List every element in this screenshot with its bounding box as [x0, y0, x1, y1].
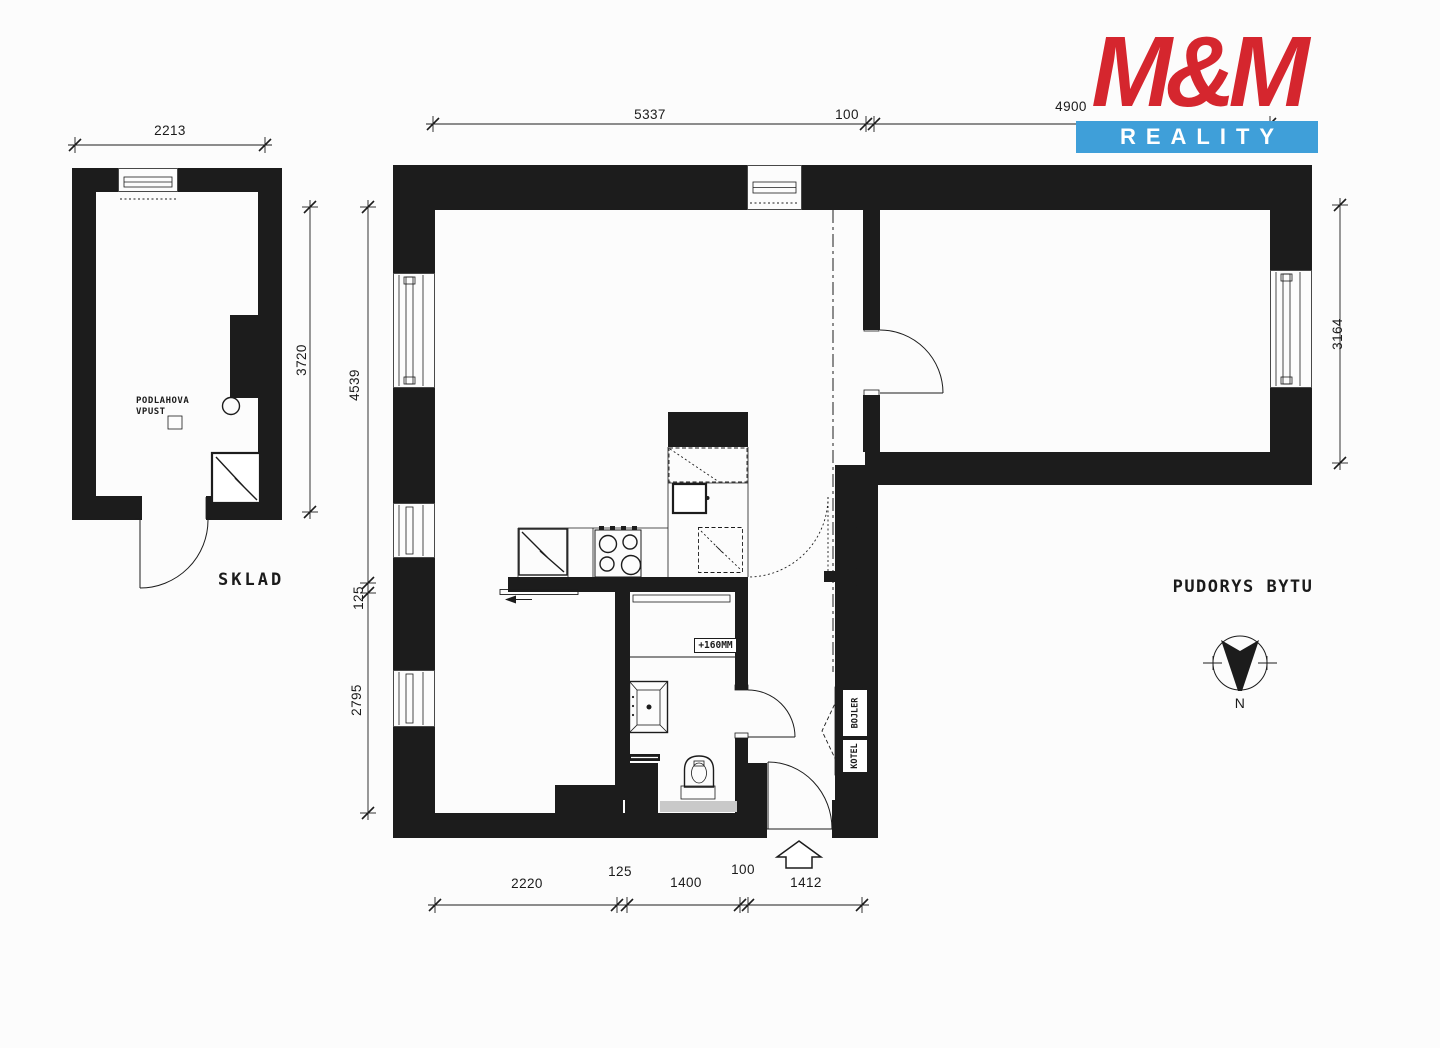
window-left-3 — [394, 671, 435, 727]
dim-sklad-right: 3720 — [294, 320, 310, 400]
door-entrance — [768, 762, 832, 829]
door-kitchen-dashed — [748, 497, 828, 577]
appliance-dashed-icon — [699, 528, 743, 573]
flue-circle — [223, 398, 240, 415]
floorplan-page: 2213 3720 5337 100 4900 4539 125 2795 31… — [0, 0, 1440, 1048]
window-right — [1271, 271, 1312, 388]
apartment-plan-label: PUDORYS BYTU — [1143, 577, 1343, 597]
floor-drain-label-line1: PODLAHOVA — [136, 396, 189, 407]
kitchen-chimney — [668, 412, 748, 447]
shower-shelf — [633, 595, 730, 602]
upper-cabinet-dashed — [669, 448, 747, 482]
dim-bottom-2220: 2220 — [487, 876, 567, 892]
sklad-room-label: SKLAD — [218, 570, 284, 590]
bath-threshold — [660, 801, 737, 812]
door-bathroom — [735, 685, 795, 738]
dim-bottom-1412: 1412 — [766, 875, 846, 891]
compass-north-label: N — [1200, 695, 1280, 711]
water-heater-box: BOJLER — [842, 689, 868, 737]
fridge-icon — [519, 529, 567, 575]
north-compass-icon — [1203, 636, 1277, 691]
window-top — [748, 166, 802, 210]
bath-step-label: +160MM — [694, 638, 737, 653]
sklad-boiler-icon — [212, 453, 260, 503]
apartment-walls — [393, 165, 1312, 838]
dim-top-100: 100 — [807, 107, 887, 123]
washbasin-icon — [630, 682, 668, 733]
dim-top-5337: 5337 — [610, 107, 690, 123]
floor-drain-label: PODLAHOVA VPUST — [136, 396, 189, 418]
dim-sklad-top: 2213 — [130, 123, 210, 139]
logo-brand-text: M&M — [1080, 24, 1315, 120]
entrance-arrow-icon — [777, 841, 821, 868]
dim-left-125: 125 — [351, 558, 367, 638]
sink-icon — [673, 484, 710, 513]
dim-left-2795: 2795 — [349, 660, 365, 740]
mm-reality-logo: M&M REALITY — [1076, 24, 1318, 153]
sklad-chimney — [230, 315, 258, 398]
water-heater-label: BOJLER — [850, 698, 860, 729]
towel-shelf — [629, 754, 660, 761]
dim-right-3164: 3164 — [1330, 294, 1346, 374]
sklad-door — [135, 498, 211, 589]
floor-drain-label-line2: VPUST — [136, 407, 189, 418]
wall-step — [555, 785, 623, 813]
kitchen-units — [518, 447, 748, 577]
boiler-box: KOTEL — [842, 739, 868, 773]
boiler-label: KOTEL — [850, 743, 860, 769]
sklad-window — [119, 169, 178, 200]
toilet-icon — [681, 756, 715, 799]
window-left-1 — [394, 274, 435, 388]
bath-left-wall — [615, 589, 630, 800]
window-left-2 — [394, 504, 435, 558]
dim-left-4539: 4539 — [347, 345, 363, 425]
stove-icon — [595, 526, 641, 577]
door-right-room — [864, 325, 943, 396]
